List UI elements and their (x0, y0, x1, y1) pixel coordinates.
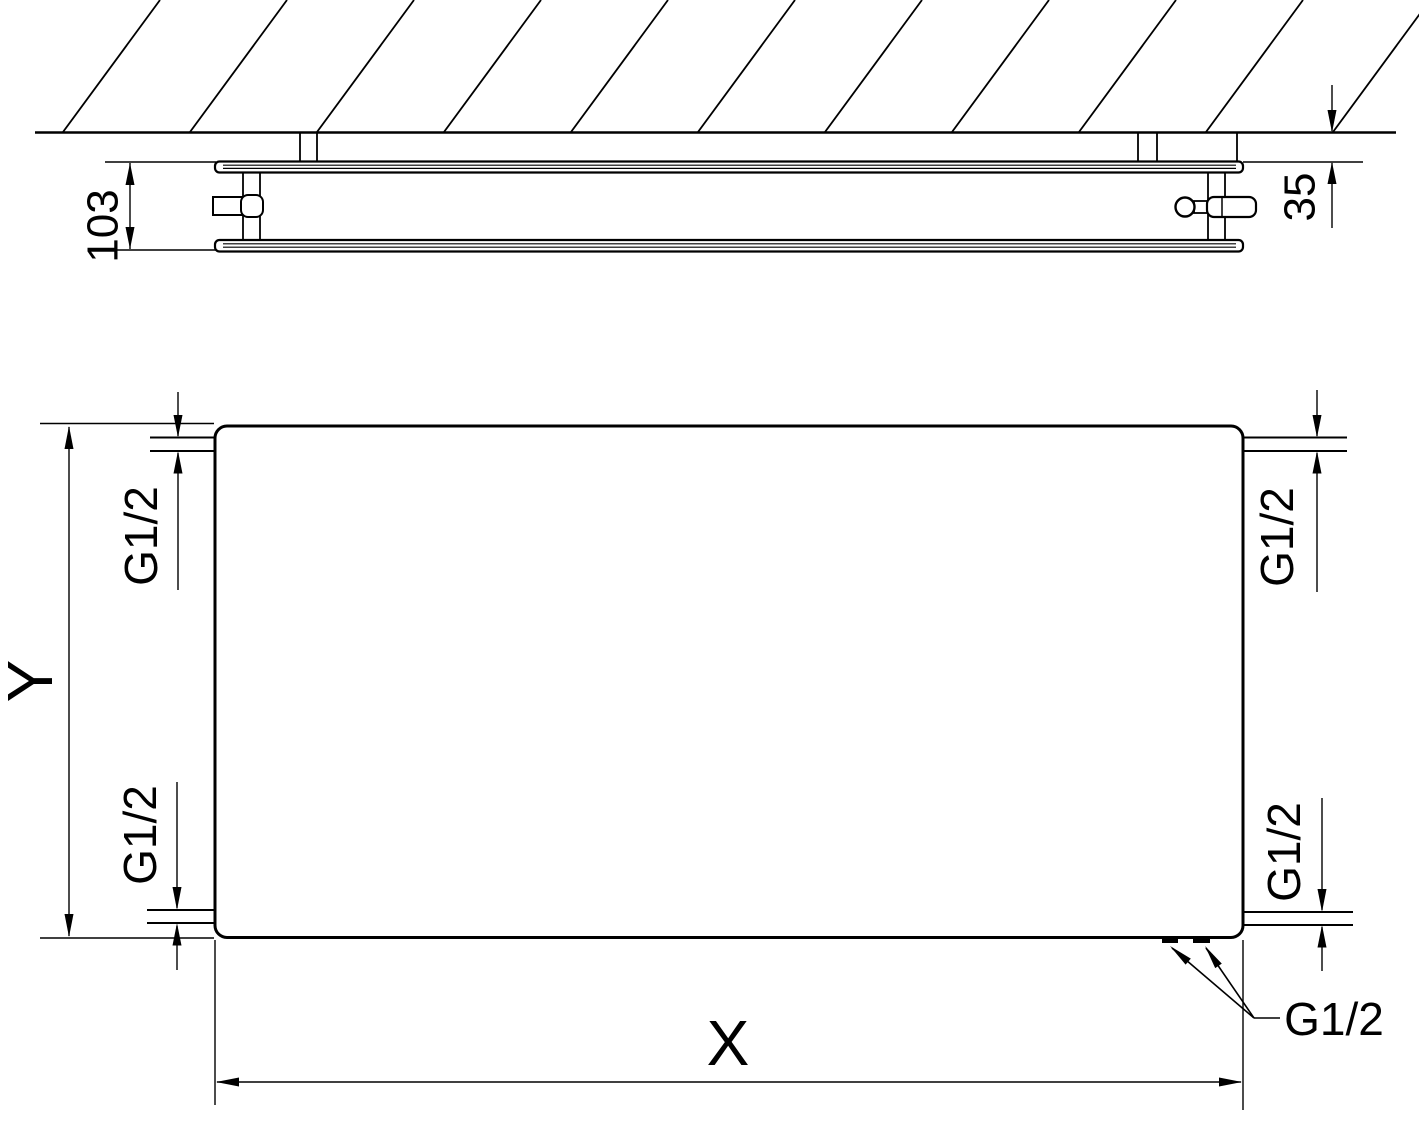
radiator-top-band (215, 162, 1243, 173)
connection-stub-bottom-left (147, 910, 214, 923)
dim-103-label: 103 (79, 189, 128, 262)
connection-stub-top-right (1244, 438, 1347, 452)
dimension-wall-gap-35: 35 (1243, 85, 1363, 228)
front-view: Y X G1/2 G1/2 (0, 390, 1384, 1110)
g12-top-left-label: G1/2 (115, 486, 167, 586)
dimension-g12-top-left: G1/2 (115, 392, 183, 590)
dim-Y-label: Y (0, 660, 66, 703)
g12-bottom-label: G1/2 (1284, 993, 1384, 1045)
radiator-bottom-band (215, 240, 1243, 252)
g12-bottom-left-label: G1/2 (114, 785, 166, 885)
wall-hatch (63, 0, 1419, 132)
dim-X-label: X (707, 1007, 750, 1079)
dimension-g12-top-right: G1/2 (1251, 390, 1322, 592)
radiator-dimension-drawing: 103 35 (0, 0, 1419, 1123)
wall-bracket-right (1138, 133, 1157, 161)
g12-bottom-right-label: G1/2 (1258, 802, 1310, 902)
leader-g12-bottom: G1/2 (1170, 946, 1384, 1045)
dimension-height-Y: Y (0, 424, 214, 939)
connection-stub-bottom-right (1244, 912, 1353, 925)
wall-bracket-left (300, 133, 317, 161)
technical-drawing-page: 103 35 (0, 0, 1419, 1123)
dim-35-label: 35 (1276, 173, 1325, 222)
connection-stub-top-left (150, 438, 214, 452)
air-vent-plug-left (213, 195, 263, 217)
dimension-depth-103: 103 (79, 162, 217, 263)
dimension-g12-bottom-right: G1/2 (1258, 798, 1327, 971)
dimension-g12-bottom-left: G1/2 (114, 782, 182, 970)
dimension-width-X: X (215, 940, 1243, 1110)
radiator-panel (215, 426, 1243, 938)
top-view: 103 35 (35, 0, 1419, 263)
drain-valve-right (1176, 197, 1257, 217)
g12-top-right-label: G1/2 (1251, 487, 1303, 587)
